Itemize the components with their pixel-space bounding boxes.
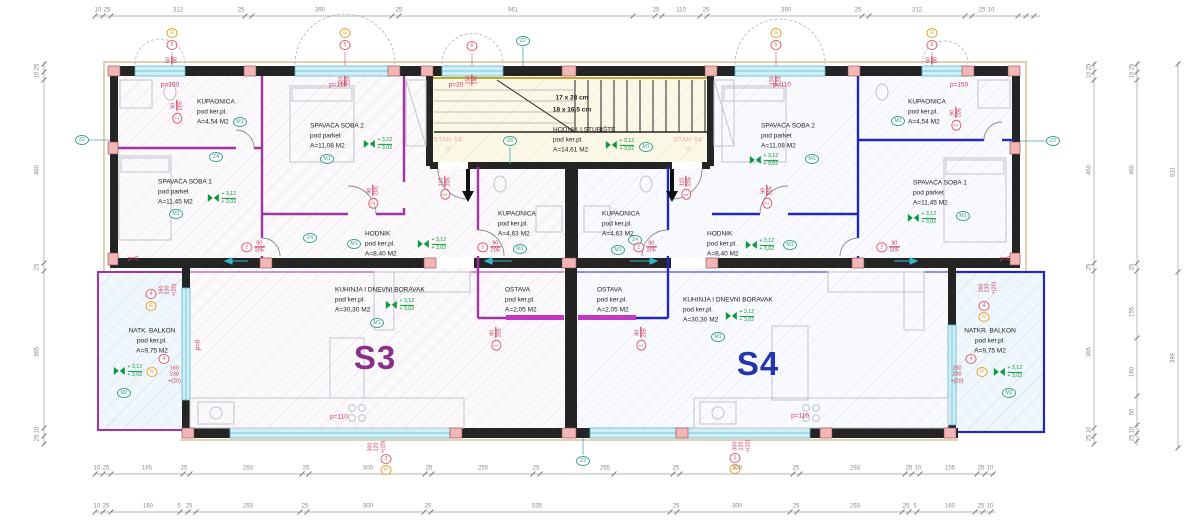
parapet-label: p=0 <box>193 339 202 350</box>
dim-label: 155 <box>945 465 955 474</box>
mark-z4: Z4 <box>209 152 223 162</box>
dim-label: 10 <box>94 465 101 474</box>
dim-label: 25 <box>978 465 985 474</box>
parapet-label: p=20 <box>449 80 464 89</box>
dim-label: 10 <box>34 72 43 79</box>
window-number: 5 <box>340 40 351 50</box>
room-name: KUPAONICA <box>197 97 235 107</box>
apartment-id-s4: S4 <box>737 340 779 388</box>
dim-label: 25 <box>653 7 660 16</box>
stan-pointer-icon: ▽ <box>685 146 690 156</box>
label-layer: KUPAONICApod ker.pl.A=4,54 M2 SPAVAĆA SO… <box>0 0 1200 522</box>
kitchen-window-number: 3 <box>381 454 392 464</box>
level-flag-icon <box>208 194 219 202</box>
dim-label: 25 <box>103 465 110 474</box>
dim-label: 10 <box>915 465 922 474</box>
stan-s3-label: STAN S3 <box>434 137 463 146</box>
dim-label: 25 <box>978 503 985 512</box>
level-flag-icon <box>606 141 617 149</box>
mark-m1: M1 <box>956 211 970 221</box>
dim-label: 165 <box>142 465 152 474</box>
dim-label: 10 <box>988 7 995 16</box>
window-label-60: 6080 <box>165 56 178 64</box>
dim-label: 312 <box>912 7 922 16</box>
level-flag-icon <box>386 301 397 309</box>
level-flag-icon <box>994 368 1005 376</box>
dim-label: 25 <box>396 7 403 16</box>
mark-m1: M1 <box>169 209 183 219</box>
dim-label: 25 <box>238 7 245 16</box>
parapet-label: p=110 <box>791 411 809 420</box>
dim-label: 50 <box>1129 409 1138 416</box>
dim-label: 25 <box>103 503 110 512</box>
dim-label: 10 <box>1086 72 1095 79</box>
stan-pointer-icon: ▽ <box>445 146 450 156</box>
room-label-balkon-right: NATKR. BALKONpod ker.pl.A=9,75 M2 <box>964 326 1016 355</box>
mark-m1: M1 <box>805 154 819 164</box>
dim-label: 535 <box>532 503 542 512</box>
dim-label: 25 <box>34 435 43 442</box>
dim-label: 25 <box>703 7 710 16</box>
level-flag: + 3,12+ 3,02 <box>908 211 936 225</box>
mark-r: R <box>147 367 158 377</box>
balcony-door-label: 160230+(20) <box>158 284 177 297</box>
dim-label: 25 <box>673 465 680 474</box>
window-number: 6 <box>927 40 938 50</box>
dim-label: 255 <box>600 465 610 474</box>
mark-r: R <box>381 465 392 475</box>
dim-label: 25 <box>903 503 910 512</box>
mark-g: G <box>340 28 351 38</box>
room-label-hodnik-left: HODNIKpod ker.pl.A=8,40 M2 <box>365 229 397 258</box>
level-flag-icon <box>364 140 375 148</box>
level-flag: + 3,12+ 3,02 <box>386 298 414 312</box>
mark-z6: Z6 <box>503 136 517 146</box>
room-label-spavaca-soba1-left: SPAVAĆA SOBA 1pod parketA=11,45 M2 <box>158 177 212 206</box>
dim-label: 25 <box>1129 64 1138 71</box>
dim-label: 25 <box>186 503 193 512</box>
level-flag: + 3,12+ 3,02 <box>750 153 778 167</box>
mark-z2: Z2 <box>1046 136 1060 146</box>
dim-label: 25 <box>1129 435 1138 442</box>
dim-label: 10 <box>34 427 43 434</box>
level-flag: + 3,12+ 3,02 <box>726 309 754 323</box>
level-flag-icon <box>746 241 757 249</box>
room-label-ostava-right: OSTAVApod ker.pl.A=2,05 M2 <box>597 285 629 314</box>
level-flag-icon <box>908 214 919 222</box>
kitchen-window-label: 300120+(20) <box>367 441 386 454</box>
parapet-label: p=150 <box>161 80 179 89</box>
stan-s4-label: STAN S4 <box>674 137 703 146</box>
mark-m1: M1 <box>611 245 625 255</box>
dim-label: 561 <box>508 7 518 16</box>
level-flag: + 3,12+ 3,02 <box>994 365 1022 379</box>
window-number: 6 <box>167 40 178 50</box>
dim-label: 25 <box>34 264 43 271</box>
kitchen-window-number: 3 <box>730 453 741 463</box>
balcony-door-label: 160230+(20) <box>978 282 997 295</box>
door-label-90: 290205 <box>760 185 773 209</box>
mark-m1: M1 <box>639 142 653 152</box>
dim-label: 10 <box>987 503 994 512</box>
dim-label: 25 <box>34 64 43 71</box>
dim-label: 25 <box>793 465 800 474</box>
mark-m1: M1 <box>320 154 334 164</box>
door-label-90: 290205 <box>477 240 501 253</box>
dim-label: 5 <box>913 503 916 512</box>
level-flag-icon <box>418 240 429 248</box>
dim-label: 25 <box>302 503 309 512</box>
dim-label: 160 <box>945 503 955 512</box>
dim-label: 10 <box>95 7 102 16</box>
mark-m1: M1 <box>233 117 247 127</box>
dim-label: 460 <box>1086 165 1095 175</box>
dim-label: 25 <box>303 465 310 474</box>
mark-m1: M1 <box>513 244 527 254</box>
parapet-label: p=110 <box>330 412 348 421</box>
dim-label: 10 <box>94 503 101 512</box>
room-label-hodnik-right: HODNIKpod ker.pl.A=8,40 M2 <box>707 229 739 258</box>
dim-label: 25 <box>426 465 433 474</box>
dim-label: 10 <box>987 465 994 474</box>
floor-plan-canvas: KUPAONICApod ker.pl.A=4,54 M2 SPAVAĆA SO… <box>0 0 1200 522</box>
dim-label: 160 <box>1129 367 1138 377</box>
dim-label: 255 <box>478 465 488 474</box>
dim-label: 531 <box>1170 167 1179 177</box>
door-label-90: 290205 <box>876 240 900 253</box>
mark-g: G <box>771 28 782 38</box>
mark-z2: Z2 <box>516 36 530 46</box>
dim-label: 460 <box>1129 165 1138 175</box>
dim-label: 25 <box>104 7 111 16</box>
dim-label: 10 <box>1129 427 1138 434</box>
stair-dim-1: 17 x 28 cm <box>556 93 589 102</box>
window-label-120: 120120 <box>338 76 351 87</box>
dim-label: 390 <box>781 7 791 16</box>
dim-label: 300 <box>363 465 373 474</box>
kitchen-window-label: 300120+(20) <box>732 440 751 453</box>
dim-label: 25 <box>533 465 540 474</box>
balcony-door-label: 160230+(20) <box>951 365 964 384</box>
dim-label: 390 <box>315 7 325 16</box>
mark-m2: M2 <box>117 388 131 398</box>
window-label-60: 6080 <box>925 56 938 64</box>
dim-label: 365 <box>1086 347 1095 357</box>
door-label-90: 290205 <box>949 107 962 131</box>
dim-label: 300 <box>363 503 373 512</box>
dim-label: 300 <box>732 503 742 512</box>
parapet-label: p=150 <box>950 80 968 89</box>
door-label-80: 180205 <box>634 327 647 351</box>
mark-z4: Z4 <box>303 233 317 243</box>
dim-label: 160 <box>143 503 153 512</box>
door-label-90: 290205 <box>366 185 379 209</box>
dim-label: 25 <box>1086 435 1095 442</box>
window-number: 5 <box>771 40 782 50</box>
mark-z2: Z2 <box>75 135 89 145</box>
level-flag-icon <box>726 312 737 320</box>
room-label-ostava-left: OSTAVApod ker.pl.A=2,05 M2 <box>505 285 537 314</box>
mark-z2: Z2 <box>576 456 590 466</box>
dim-label: 25 <box>979 7 986 16</box>
dim-label: 312 <box>173 7 183 16</box>
room-floor: pod ker.pl. <box>197 107 235 117</box>
level-flag: + 3,12+ 3,02 <box>364 137 392 151</box>
dim-label: 25 <box>181 465 188 474</box>
apartment-id-s3: S3 <box>354 334 396 382</box>
dim-label: 25 <box>793 503 800 512</box>
door-label-80: 180205 <box>489 327 502 351</box>
room-label-spavaca-soba2-right: SPAVAĆA SOBA 2pod parketA=11,08 M2 <box>761 121 815 150</box>
dim-label: 5 <box>177 503 180 512</box>
dim-label: 25 <box>855 7 862 16</box>
balcony-door-number: 4 <box>979 301 990 311</box>
room-label-balkon-left: NATK. BALKONpod ker.pl.A=9,75 M2 <box>129 326 176 355</box>
mark-m1: M1 <box>783 240 797 250</box>
mark-r: R <box>977 367 988 377</box>
level-flag-icon <box>750 156 761 164</box>
balcony-door-number: 4 <box>966 354 977 364</box>
dim-label: 25 <box>425 503 432 512</box>
balcony-door-number: 4 <box>146 289 157 299</box>
window-label-150: 150190 <box>465 75 478 86</box>
door-label-90: 290205 <box>241 240 265 253</box>
mark-m1: M1 <box>347 239 361 249</box>
dim-label: 300 <box>732 465 742 474</box>
window-label-120: 120120 <box>769 76 782 87</box>
dim-label: 110 <box>676 7 686 16</box>
dim-label: 293 <box>243 503 253 512</box>
room-area: A=4,54 M2 <box>197 117 235 127</box>
dim-label: 293 <box>243 465 253 474</box>
dim-label: 293 <box>850 465 860 474</box>
room-label-spavaca-soba2-left: SPAVAĆA SOBA 2pod parketA=11,08 M2 <box>310 121 364 150</box>
mark-m2: M2 <box>1002 388 1016 398</box>
room-label-spavaca-soba1-right: SPAVAĆA SOBA 1pod parketA=11,45 M2 <box>913 178 967 207</box>
dim-label: 10 <box>1129 72 1138 79</box>
level-flag: + 3,12+ 3,02 <box>114 364 142 378</box>
dim-label: 25 <box>673 503 680 512</box>
dim-label: 389 <box>1170 353 1179 363</box>
door-label-90: 290205 <box>170 100 183 124</box>
door-label-110: 1110205 <box>438 176 451 200</box>
room-label-kupaonica-mid-left: KUPAONICApod ker.pl.A=4,63 M2 <box>498 209 536 238</box>
parapet-label: p=0 <box>127 254 138 263</box>
parapet-label: p=0 <box>999 254 1010 263</box>
door-label-110: 1110205 <box>679 176 692 200</box>
balcony-door-number: 4 <box>159 354 170 364</box>
dim-label: 25 <box>1086 64 1095 71</box>
mark-m1: M1 <box>370 318 384 328</box>
window-number: 8 <box>467 41 478 51</box>
dim-label: 10 <box>1086 427 1095 434</box>
dim-label: 25 <box>1129 264 1138 271</box>
dim-label: 365 <box>34 347 43 357</box>
mark-g: G <box>167 28 178 38</box>
room-label-kupaonica-top-left: KUPAONICApod ker.pl.A=4,54 M2 <box>197 97 235 126</box>
level-flag: + 3,12+ 3,02 <box>746 238 774 252</box>
room-label-kupaonica-top-right: KUPAONICApod ker.pl.A=4,54 M2 <box>908 97 946 126</box>
dim-label: 155 <box>1129 307 1138 317</box>
level-flag: + 3,12+ 3,02 <box>418 237 446 251</box>
door-label-90: 290205 <box>633 240 657 253</box>
level-flag: + 3,12+ 3,02 <box>208 191 236 205</box>
mark-m1: M1 <box>711 332 725 342</box>
stair-dim-2: 18 x 16,5 cm <box>553 105 591 114</box>
level-flag: + 3,12+ 3,02 <box>606 138 634 152</box>
level-flag-icon <box>114 367 125 375</box>
mark-r: R <box>979 312 990 322</box>
dim-label: 25 <box>1086 264 1095 271</box>
dim-label: 293 <box>850 503 860 512</box>
balcony-door-label: 160230+(20) <box>168 365 181 384</box>
mark-g: G <box>927 28 938 38</box>
mark-r: R <box>146 301 157 311</box>
dim-label: 460 <box>34 165 43 175</box>
mark-m1: M1 <box>891 116 905 126</box>
dim-label: 25 <box>906 465 913 474</box>
